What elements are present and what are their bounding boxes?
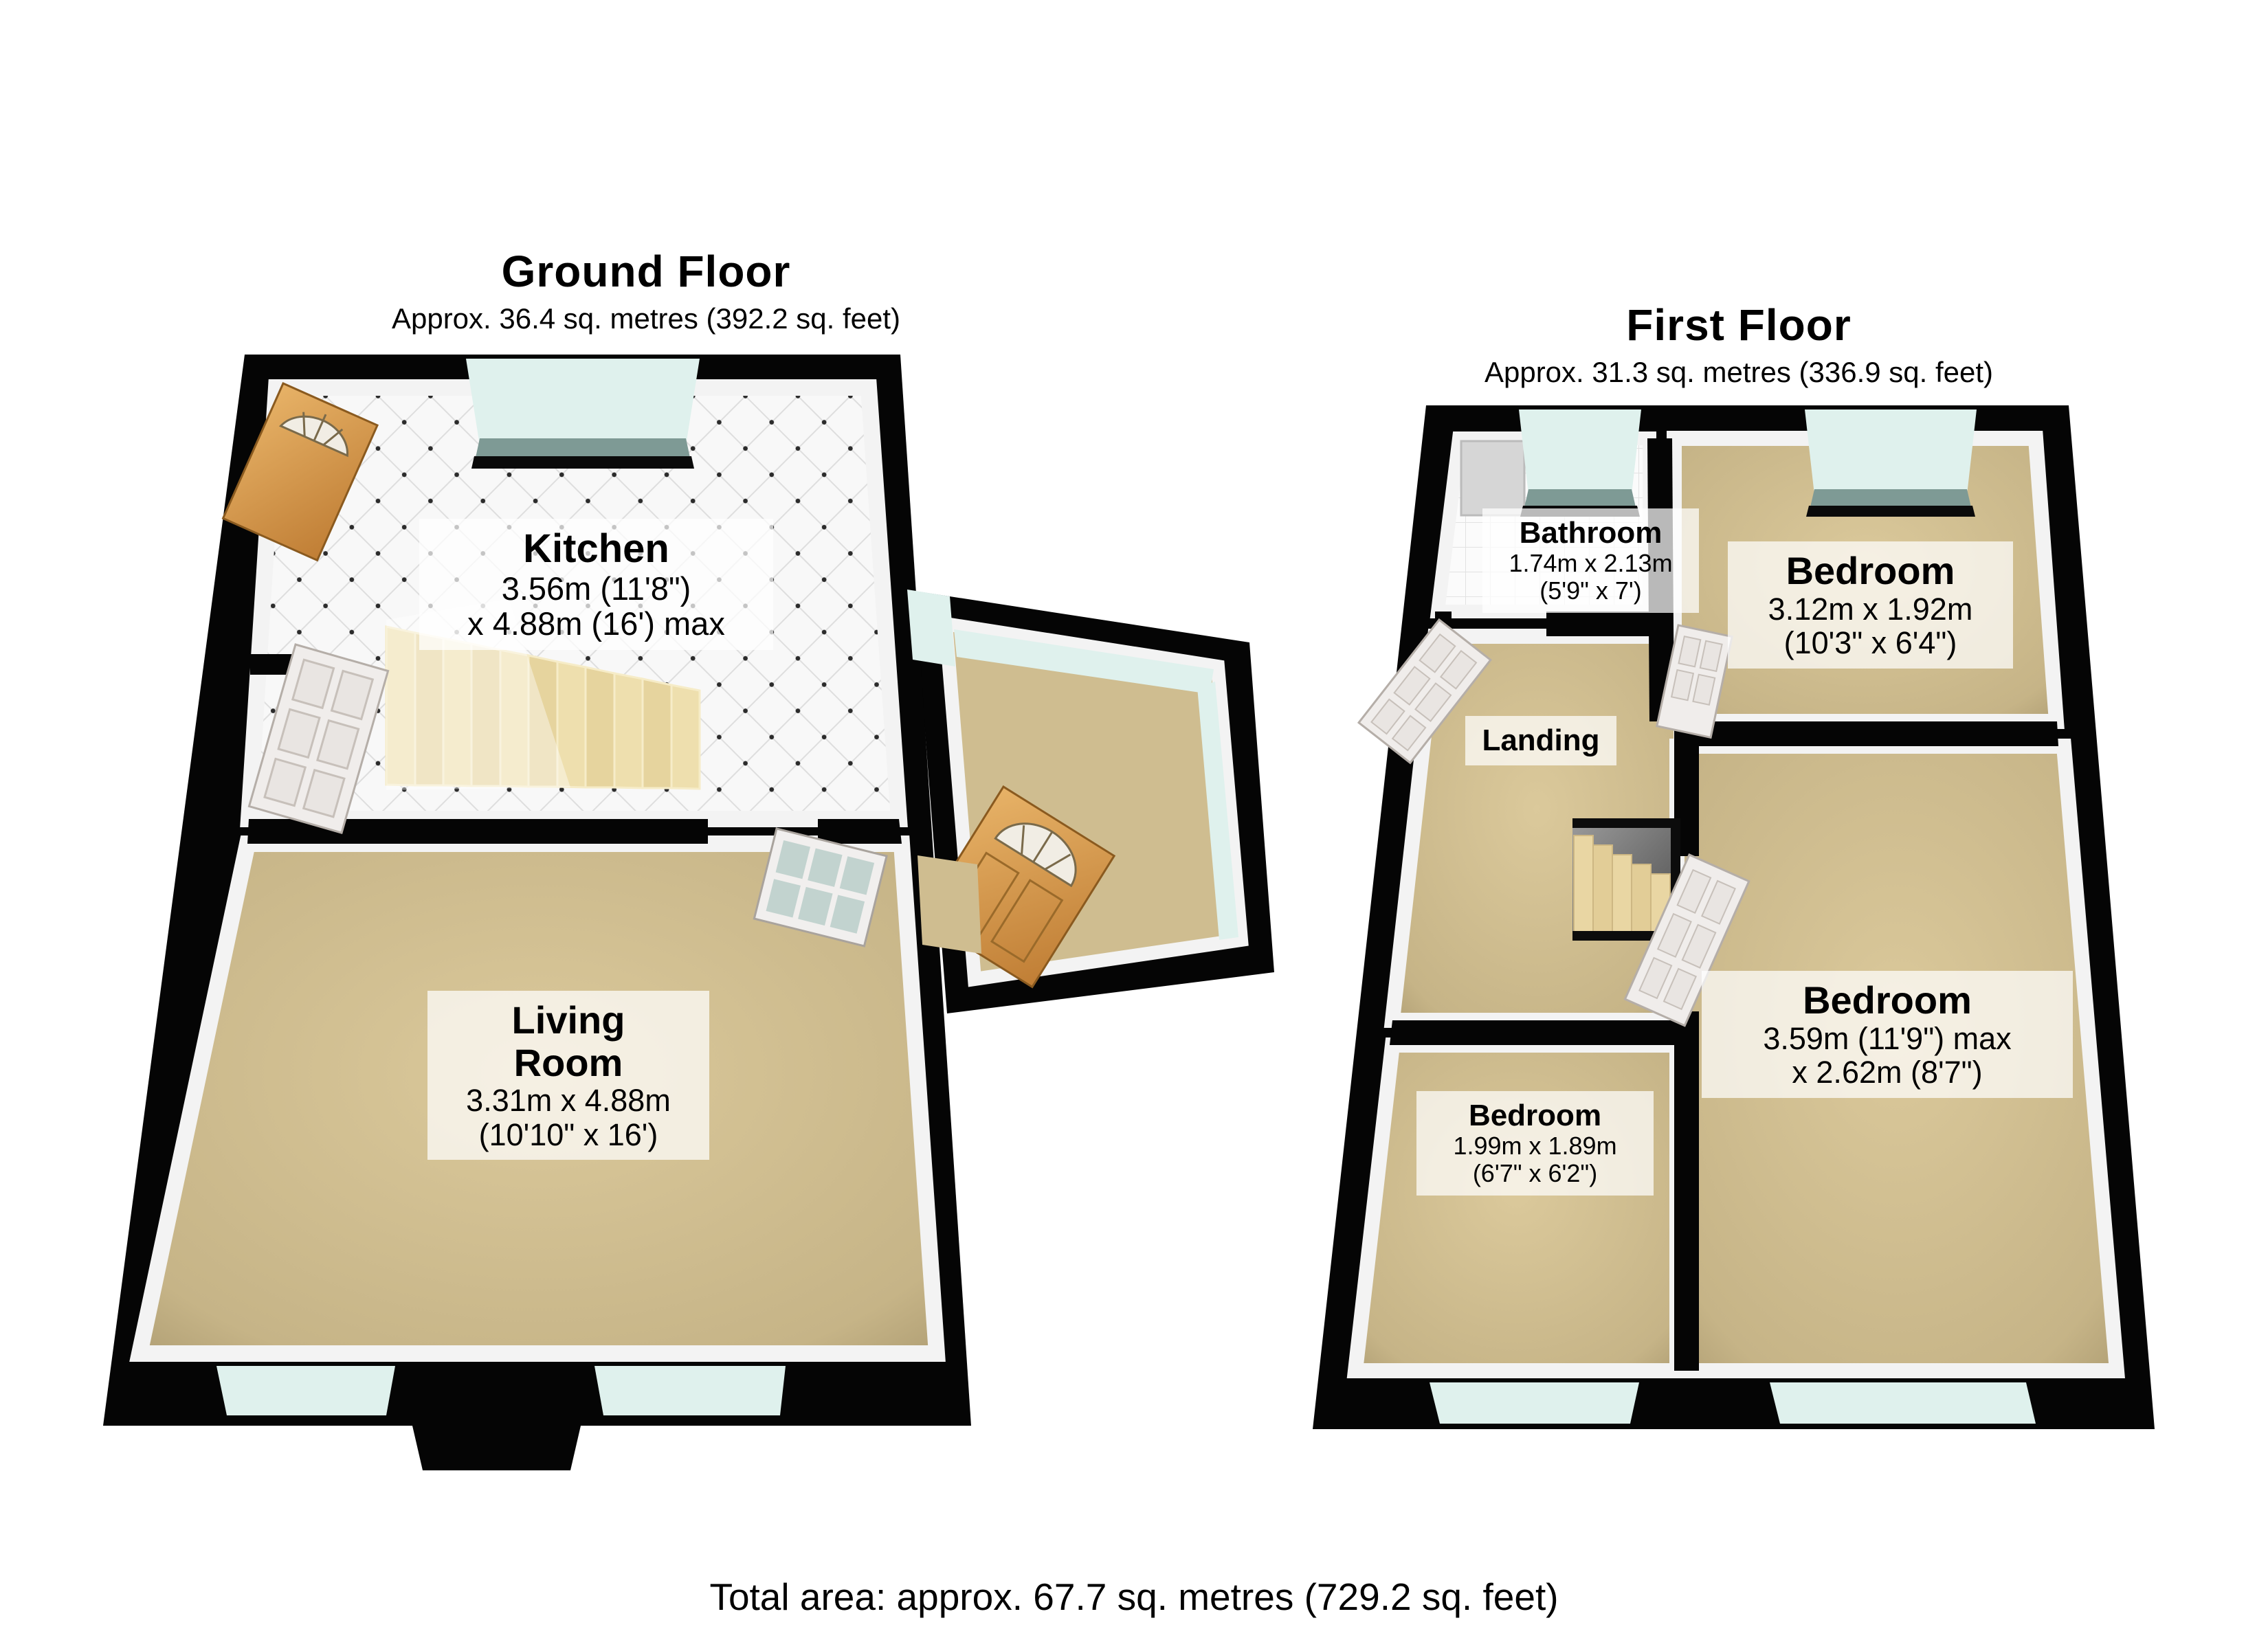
ground-floor-plan: Kitchen 3.56m (11'8") x 4.88m (16') max …: [89, 344, 1299, 1484]
first-floor-title-block: First Floor Approx. 31.3 sq. metres (336…: [1326, 300, 2151, 389]
bedroom-small-dim2: (6'7" x 6'2"): [1423, 1160, 1647, 1187]
living-room-name-1: Living: [434, 999, 702, 1042]
kitchen-name: Kitchen: [426, 527, 766, 571]
bathroom-dim1: 1.74m x 2.13m: [1489, 550, 1692, 577]
bedroom-rear-name: Bedroom: [1709, 979, 2066, 1022]
front-step: [412, 1426, 581, 1470]
first-floor-subtitle: Approx. 31.3 sq. metres (336.9 sq. feet): [1326, 356, 2151, 389]
bathroom-label: Bathroom 1.74m x 2.13m (5'9" x 7'): [1482, 508, 1699, 613]
ground-floor-title: Ground Floor: [220, 246, 1072, 297]
kitchen-dim2: x 4.88m (16') max: [426, 606, 766, 642]
bedroom-front-label: Bedroom 3.12m x 1.92m (10'3" x 6'4"): [1728, 541, 2013, 669]
hall-passage-floor: [918, 855, 981, 954]
bathroom-dim2: (5'9" x 7'): [1489, 577, 1692, 605]
first-floor-title: First Floor: [1326, 300, 2151, 350]
shower-tray: [1461, 441, 1524, 515]
kitchen-dim1: 3.56m (11'8"): [426, 571, 766, 607]
ground-floor-subtitle: Approx. 36.4 sq. metres (392.2 sq. feet): [220, 302, 1072, 335]
bedroom-front-dim2: (10'3" x 6'4"): [1735, 626, 2006, 660]
living-room-dim2: (10'10" x 16'): [434, 1118, 702, 1152]
living-room-name-2: Room: [434, 1042, 702, 1084]
kitchen-bay-window: [466, 359, 700, 469]
landing-name: Landing: [1472, 724, 1610, 757]
bedroom-front-dim1: 3.12m x 1.92m: [1735, 592, 2006, 627]
bedroom-small-name: Bedroom: [1423, 1099, 1647, 1132]
bedroom-rear-dim1: 3.59m (11'9") max: [1709, 1022, 2066, 1056]
bathroom-name: Bathroom: [1489, 517, 1692, 550]
ground-floor-drawing: [89, 344, 1299, 1484]
living-room-label: Living Room 3.31m x 4.88m (10'10" x 16'): [427, 991, 709, 1160]
bedroom-small-dim1: 1.99m x 1.89m: [1423, 1132, 1647, 1160]
bedroom-rear-dim2: x 2.62m (8'7"): [1709, 1055, 2066, 1090]
landing-label: Landing: [1465, 716, 1616, 765]
bedroom-small-label: Bedroom 1.99m x 1.89m (6'7" x 6'2"): [1416, 1091, 1654, 1196]
bedroom-rear-label: Bedroom 3.59m (11'9") max x 2.62m (8'7"): [1702, 971, 2073, 1098]
kitchen-label: Kitchen 3.56m (11'8") x 4.88m (16') max: [419, 519, 773, 650]
ground-floor-title-block: Ground Floor Approx. 36.4 sq. metres (39…: [220, 246, 1072, 335]
first-floor-plan: Bathroom 1.74m x 2.13m (5'9" x 7') Bedro…: [1292, 399, 2186, 1457]
bedroom-front-name: Bedroom: [1735, 550, 2006, 592]
total-area-text: Total area: approx. 67.7 sq. metres (729…: [447, 1575, 1821, 1619]
kitchen-side-window: [907, 590, 955, 666]
living-room-dim1: 3.31m x 4.88m: [434, 1084, 702, 1118]
